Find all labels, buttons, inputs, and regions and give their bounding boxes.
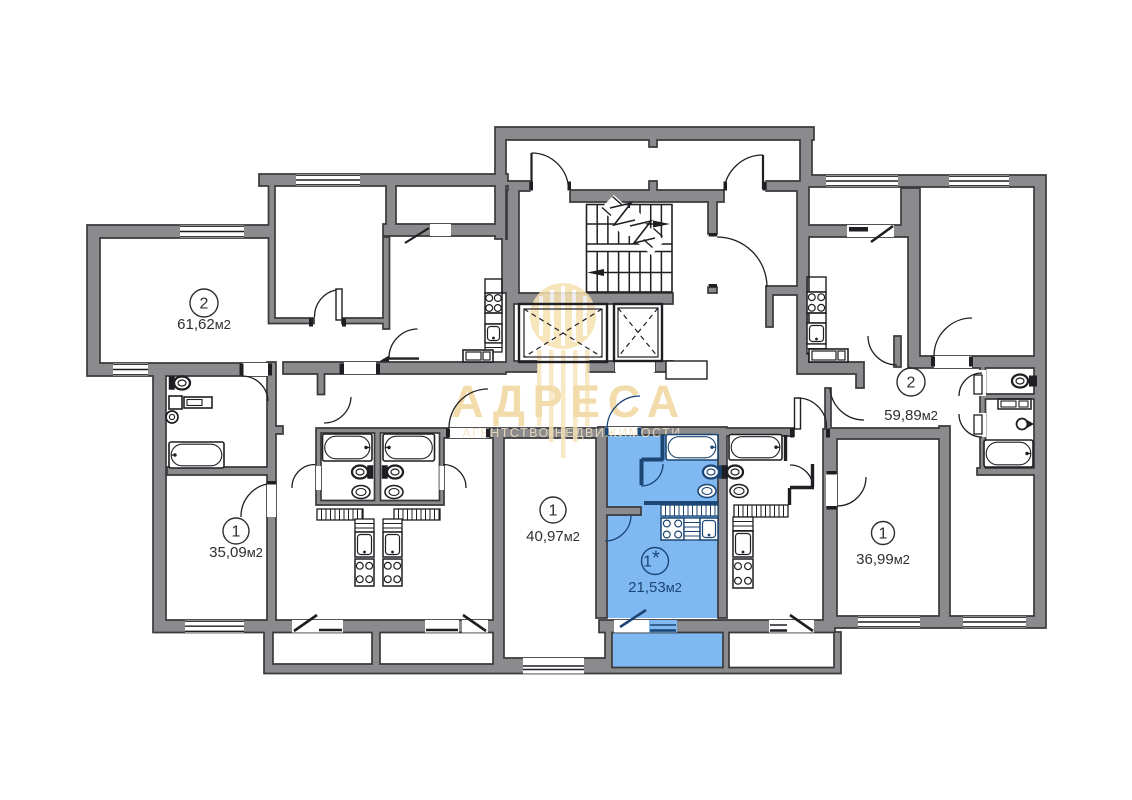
svg-text:1: 1: [879, 526, 888, 543]
svg-text:1: 1: [549, 503, 558, 520]
svg-text:1: 1: [232, 524, 241, 541]
svg-text:АДРЕСА: АДРЕСА: [451, 376, 687, 427]
svg-text:59,89м2: 59,89м2: [884, 407, 938, 424]
svg-text:61,62м2: 61,62м2: [177, 316, 231, 333]
svg-text:2: 2: [907, 375, 916, 392]
svg-text:2: 2: [200, 296, 209, 313]
svg-text:АГЕНТСТВО НЕДВИЖИМОСТИ: АГЕНТСТВО НЕДВИЖИМОСТИ: [462, 426, 682, 440]
svg-text:21,53м2: 21,53м2: [628, 579, 682, 596]
svg-text:40,97м2: 40,97м2: [526, 528, 580, 545]
svg-text:36,99м2: 36,99м2: [856, 551, 910, 568]
svg-text:35,09м2: 35,09м2: [209, 544, 263, 561]
